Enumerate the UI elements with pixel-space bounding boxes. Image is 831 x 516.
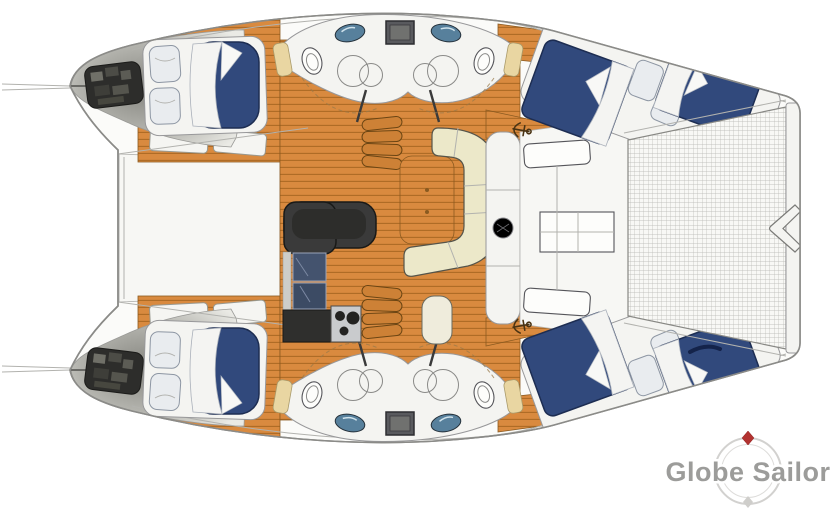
cockpit — [512, 112, 628, 344]
step — [362, 312, 402, 324]
engine-detail — [105, 66, 119, 77]
helm-badge — [493, 218, 513, 238]
bridge-deck — [118, 154, 280, 302]
engine-detail — [93, 368, 109, 380]
engine-lower — [84, 347, 145, 396]
hatch-inner — [390, 25, 410, 40]
platform-beam — [786, 103, 801, 353]
stove-icon — [331, 306, 361, 342]
freezer-icon — [293, 283, 326, 309]
catamaran-floor-plan-page: Globe Sailor — [0, 0, 831, 516]
step — [362, 130, 402, 142]
trampoline-net — [628, 107, 786, 349]
nav-seat — [422, 296, 452, 344]
step — [362, 143, 402, 155]
galley-trim — [283, 252, 291, 314]
engine-detail — [122, 359, 133, 369]
fridge-icon — [293, 253, 326, 281]
catamaran-floor-plan: Globe Sailor — [0, 0, 831, 516]
lower-bow-line — [2, 366, 70, 372]
pillow-icon — [149, 87, 180, 124]
engine-upper — [84, 61, 145, 110]
upper-bow-line — [2, 84, 70, 90]
table-detail — [425, 210, 429, 214]
forward-cabin-lower — [142, 320, 267, 420]
pillow-icon — [149, 45, 181, 83]
compass-north-icon — [742, 431, 754, 445]
engine-detail — [108, 352, 122, 363]
forward-cabin-upper — [142, 36, 267, 136]
pillow-icon — [149, 331, 180, 368]
saloon-table — [400, 156, 454, 244]
step — [362, 299, 402, 311]
logo-text: Globe Sailor — [665, 457, 830, 487]
engine-detail — [94, 85, 110, 97]
burner — [335, 311, 345, 321]
cockpit-bench — [523, 288, 591, 317]
burner — [340, 327, 349, 336]
globesailor-watermark: Globe Sailor — [665, 431, 830, 508]
compass-south-icon — [743, 496, 753, 508]
stern-platform — [624, 100, 801, 356]
hatch-inner — [390, 416, 410, 431]
pillow-icon — [149, 373, 181, 411]
table-detail — [425, 188, 429, 192]
bow-lines — [2, 84, 70, 372]
engine-detail — [90, 71, 103, 81]
engine-detail — [120, 70, 131, 80]
counter-top — [292, 209, 366, 239]
engine-detail — [93, 353, 106, 363]
galley-counter-aft — [283, 310, 331, 342]
cockpit-bench — [523, 140, 591, 169]
interior — [44, 8, 801, 447]
burner — [347, 312, 360, 325]
